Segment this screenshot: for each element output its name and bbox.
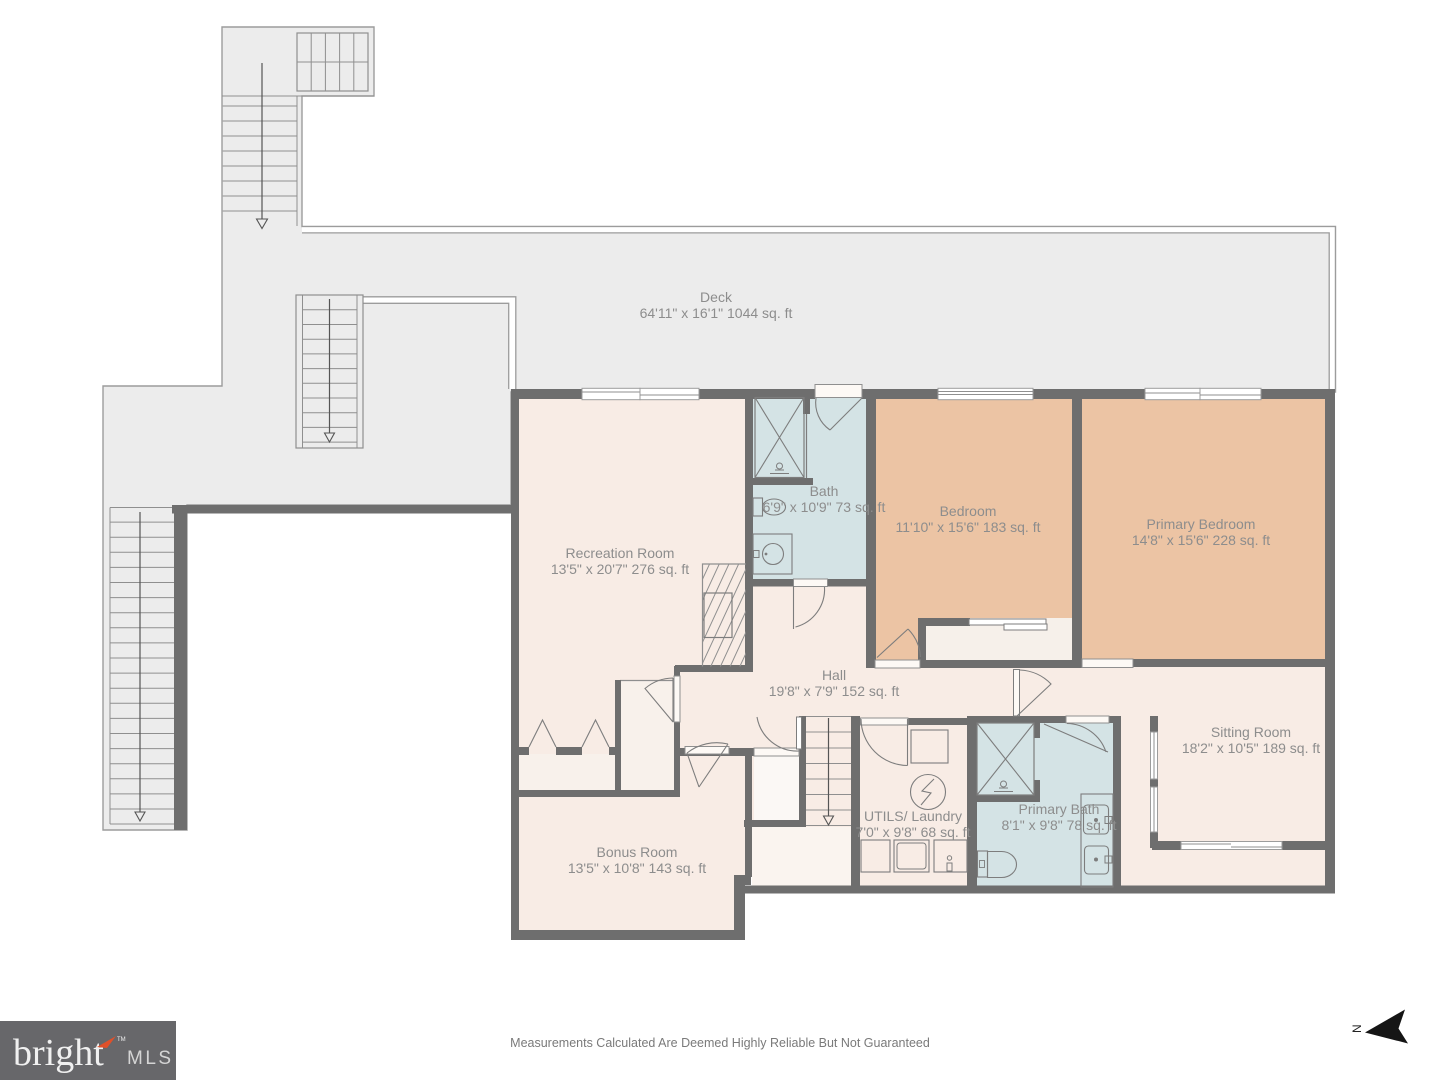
svg-text:Bedroom: Bedroom (940, 503, 997, 519)
svg-text:13'5" x 10'8" 143 sq. ft: 13'5" x 10'8" 143 sq. ft (568, 860, 706, 876)
svg-text:Primary Bath: Primary Bath (1019, 801, 1100, 817)
svg-text:Sitting Room: Sitting Room (1211, 724, 1291, 740)
svg-text:Bonus Room: Bonus Room (597, 844, 678, 860)
svg-text:11'10" x 15'6" 183 sq. ft: 11'10" x 15'6" 183 sq. ft (895, 519, 1040, 535)
svg-text:Recreation Room: Recreation Room (566, 545, 675, 561)
svg-text:19'8" x 7'9" 152 sq. ft: 19'8" x 7'9" 152 sq. ft (769, 683, 900, 699)
svg-text:8'1" x 9'8" 78 sq. ft: 8'1" x 9'8" 78 sq. ft (1002, 817, 1117, 833)
svg-text:7'0" x 9'8" 68 sq. ft: 7'0" x 9'8" 68 sq. ft (856, 824, 971, 840)
svg-text:14'8" x 15'6" 228 sq. ft: 14'8" x 15'6" 228 sq. ft (1132, 532, 1270, 548)
svg-text:TM: TM (117, 1037, 126, 1043)
svg-text:18'2" x 10'5" 189 sq. ft: 18'2" x 10'5" 189 sq. ft (1182, 740, 1320, 756)
svg-text:MLS: MLS (127, 1048, 174, 1069)
svg-text:Bath: Bath (810, 483, 839, 499)
svg-text:Hall: Hall (822, 667, 846, 683)
svg-text:6'9" x 10'9" 73 sq. ft: 6'9" x 10'9" 73 sq. ft (763, 499, 886, 515)
svg-text:Deck: Deck (700, 289, 733, 305)
svg-text:N: N (1350, 1024, 1364, 1033)
svg-text:64'11" x 16'1" 1044 sq. ft: 64'11" x 16'1" 1044 sq. ft (640, 305, 793, 321)
svg-text:Primary Bedroom: Primary Bedroom (1147, 516, 1256, 532)
svg-text:Measurements Calculated Are De: Measurements Calculated Are Deemed Highl… (510, 1036, 930, 1050)
svg-text:13'5" x 20'7" 276 sq. ft: 13'5" x 20'7" 276 sq. ft (551, 561, 689, 577)
svg-text:UTILS/ Laundry: UTILS/ Laundry (864, 808, 962, 824)
svg-text:bright: bright (13, 1032, 104, 1074)
